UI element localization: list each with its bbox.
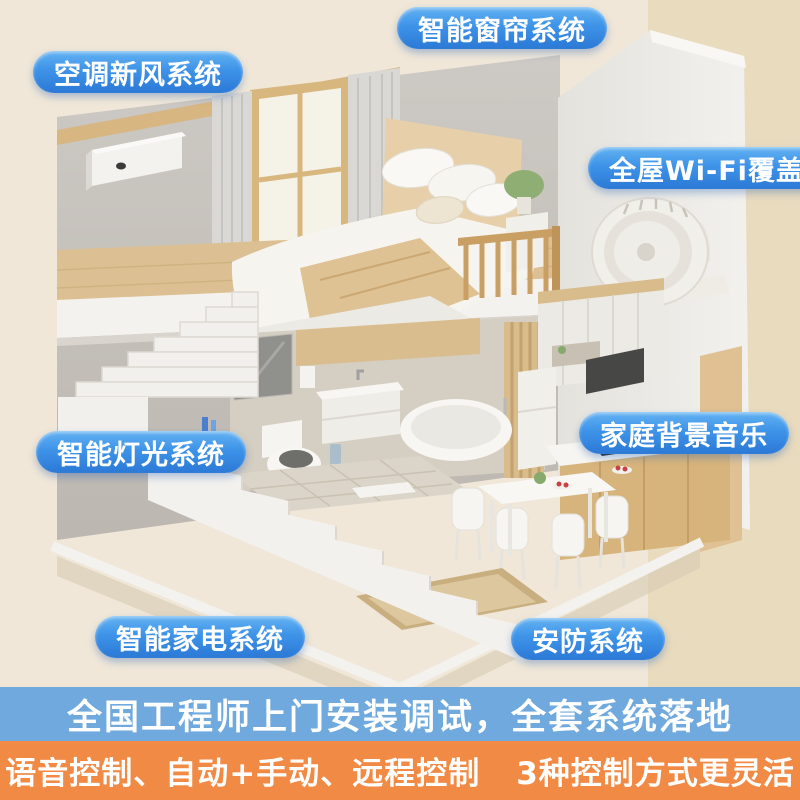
sensor-dot [116,163,126,170]
nightstand [504,170,548,272]
control-summary-text: 3种控制方式更灵活 [516,748,795,793]
fruit [616,466,621,471]
callout-label: 家庭背景音乐 [600,414,768,453]
plant-foliage [504,170,544,200]
control-methods-text: 语音控制、自动+手动、远程控制 [5,748,480,793]
callout-smart-curtain-system: 智能窗帘系统 [397,7,607,49]
smart-home-scene [0,0,800,687]
callout-security-system: 安防系统 [511,618,665,660]
fruit-plate [612,466,632,474]
towel [300,366,315,388]
fan-hub [637,243,655,261]
callout-label: 智能家电系统 [116,618,284,657]
cleaning-bottle [211,420,216,431]
fresh-air-unit-side [86,150,92,191]
callout-whole-house-wifi: 全屋Wi-Fi覆盖 [588,147,800,189]
callout-label: 安防系统 [532,620,644,659]
callout-label: 智能灯光系统 [57,433,225,472]
callout-ac-fresh-air-system: 空调新风系统 [33,51,243,93]
callout-home-background-music: 家庭背景音乐 [579,412,789,454]
installation-banner-text: 全国工程师上门安装调试，全套系统落地 [67,689,733,740]
installation-banner: 全国工程师上门安装调试，全套系统落地 [0,687,800,741]
callout-label: 全屋Wi-Fi覆盖 [609,149,800,188]
control-banner: 语音控制、自动+手动、远程控制 3种控制方式更灵活 [0,741,800,800]
cleaning-bottle [202,417,208,431]
callout-label: 空调新风系统 [54,53,222,92]
smart-home-poster: 智能窗帘系统 空调新风系统 全屋Wi-Fi覆盖 家庭背景音乐 智能灯光系统 智能… [0,0,800,800]
callout-smart-lighting-system: 智能灯光系统 [36,431,246,473]
plant-pot [517,197,531,214]
fruit [623,467,628,472]
bathtub-inner [411,405,501,449]
callout-smart-appliance-system: 智能家电系统 [95,616,305,658]
callout-label: 智能窗帘系统 [418,9,586,48]
shelf-plant [558,346,566,354]
